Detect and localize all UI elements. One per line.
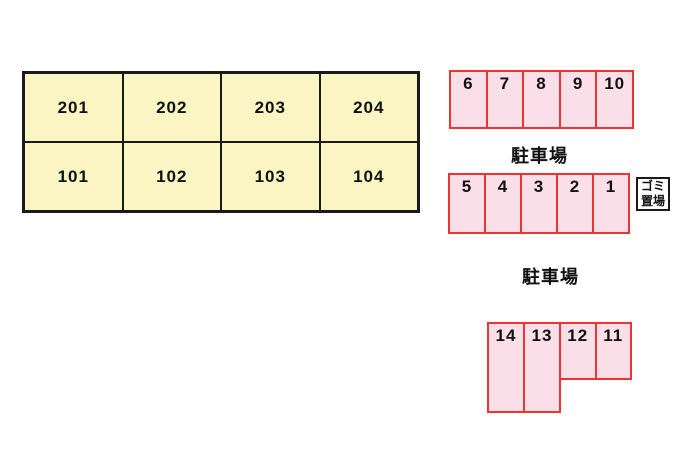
parking-space-6: 6 xyxy=(451,72,486,127)
room-cell-102: 102 xyxy=(123,142,222,211)
parking-block-12-11: 12 11 xyxy=(559,322,632,380)
parking-space-7: 7 xyxy=(486,72,523,127)
parking-row-6-10: 6 7 8 9 10 xyxy=(449,70,634,129)
parking-block-14-13: 14 13 xyxy=(487,322,561,413)
parking-space-2: 2 xyxy=(556,175,592,232)
parking-space-5: 5 xyxy=(450,175,484,232)
parking-space-12: 12 xyxy=(561,324,595,378)
parking-space-8: 8 xyxy=(522,72,559,127)
room-cell-101: 101 xyxy=(24,142,123,211)
parking-space-1: 1 xyxy=(592,175,628,232)
room-cell-104: 104 xyxy=(320,142,419,211)
building-unit-grid: 201 202 203 204 101 102 103 104 xyxy=(22,71,420,213)
parking-space-4: 4 xyxy=(484,175,520,232)
parking-area1-label: 駐車場 xyxy=(511,142,568,168)
parking-space-11: 11 xyxy=(595,324,631,378)
room-cell-203: 203 xyxy=(221,73,320,142)
building-floor-1: 101 102 103 104 xyxy=(24,142,418,211)
site-plan-diagram: 201 202 203 204 101 102 103 104 6 7 8 9 … xyxy=(0,0,700,466)
parking-area2-label: 駐車場 xyxy=(522,263,579,289)
garbage-area-label-line2: 置場 xyxy=(641,194,665,209)
room-cell-204: 204 xyxy=(320,73,419,142)
parking-space-10: 10 xyxy=(595,72,632,127)
parking-space-9: 9 xyxy=(559,72,596,127)
parking-row-5-1: 5 4 3 2 1 xyxy=(448,173,630,234)
building-floor-2: 201 202 203 204 xyxy=(24,73,418,142)
parking-space-14: 14 xyxy=(489,324,523,411)
room-cell-202: 202 xyxy=(123,73,222,142)
garbage-area-box: ゴミ 置場 xyxy=(636,177,670,211)
parking-space-13: 13 xyxy=(523,324,559,411)
parking-space-3: 3 xyxy=(520,175,556,232)
room-cell-103: 103 xyxy=(221,142,320,211)
garbage-area-label-line1: ゴミ xyxy=(641,179,665,194)
room-cell-201: 201 xyxy=(24,73,123,142)
